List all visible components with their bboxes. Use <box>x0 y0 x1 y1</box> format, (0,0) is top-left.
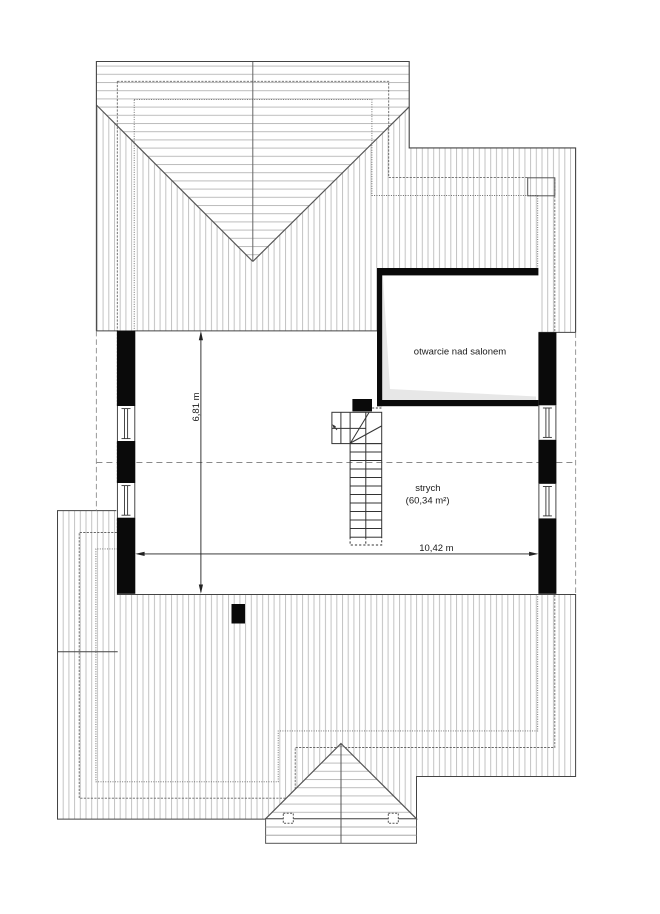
svg-text:otwarcie nad salonem: otwarcie nad salonem <box>414 347 506 358</box>
svg-text:(60,34 m²): (60,34 m²) <box>406 496 450 507</box>
svg-text:6,81 m: 6,81 m <box>191 392 202 421</box>
svg-text:strych: strych <box>415 483 440 494</box>
svg-text:10,42 m: 10,42 m <box>419 543 453 554</box>
